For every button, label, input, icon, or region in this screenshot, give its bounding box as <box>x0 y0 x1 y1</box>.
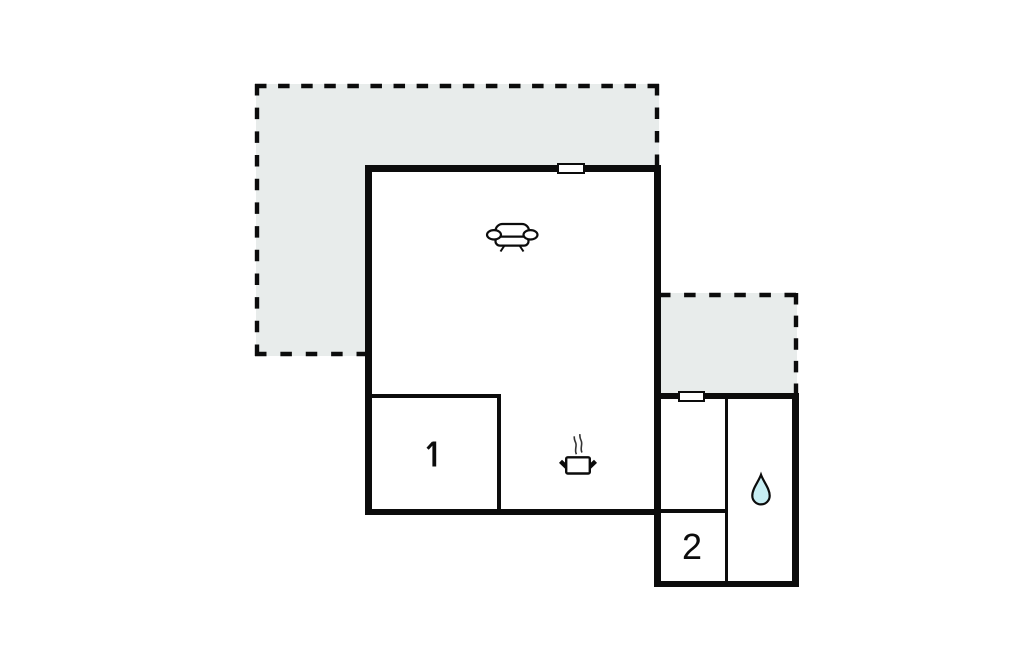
svg-text:2: 2 <box>682 526 702 567</box>
